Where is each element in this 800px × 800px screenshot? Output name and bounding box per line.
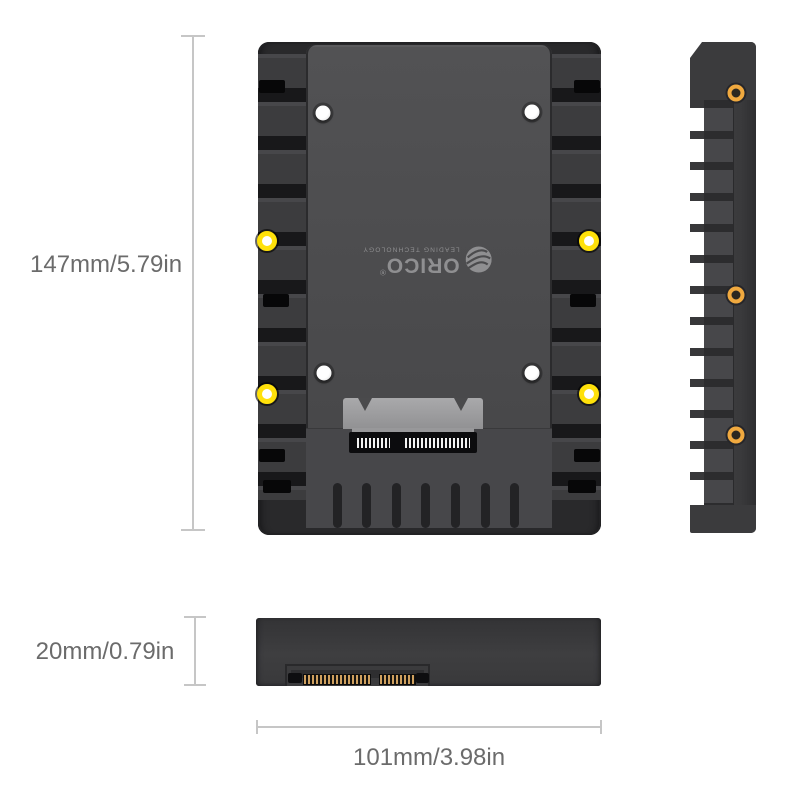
dimension-endcap <box>256 720 258 734</box>
screw-hole-white <box>316 106 331 121</box>
sata-data-pins <box>356 437 391 449</box>
width-dimension-label: 101mm/3.98in <box>353 745 503 771</box>
globe-icon <box>466 247 492 273</box>
hdd-adapter-dimension-diagram: 147mm/5.79in <box>0 0 800 800</box>
vent-slot <box>392 483 401 528</box>
side-bottom-block <box>690 505 756 533</box>
sata-power-pins <box>404 437 471 449</box>
dimension-endcap <box>184 684 206 686</box>
vent-slot <box>481 483 490 528</box>
side-view <box>690 42 756 533</box>
screw-hole-gold <box>728 287 745 304</box>
dimension-endcap <box>181 529 205 531</box>
screw-hole-yellow <box>579 384 599 404</box>
dimension-endcap <box>181 35 205 37</box>
orico-logo: ORICO ® LEADING TECHNOLOGY <box>362 246 491 275</box>
side-rib-teeth <box>690 100 704 480</box>
brand-name: ORICO <box>386 255 460 275</box>
screw-hole-yellow <box>579 231 599 251</box>
brand-tagline: LEADING TECHNOLOGY <box>362 246 459 253</box>
height-dimension-label: 147mm/5.79in <box>30 252 180 278</box>
registered-mark: ® <box>380 268 386 276</box>
screw-hole-white <box>525 366 540 381</box>
left-mounting-rail <box>258 54 312 500</box>
front-view: ORICO ® LEADING TECHNOLOGY <box>258 42 601 535</box>
dimension-endcap <box>184 616 206 618</box>
rail-slot <box>259 449 285 462</box>
thickness-dimension-line <box>194 617 196 685</box>
screw-hole-gold <box>728 427 745 444</box>
side-rib-web <box>704 100 733 505</box>
screw-hole-gold <box>728 85 745 102</box>
connector-tab <box>288 673 302 683</box>
vent-slot <box>362 483 371 528</box>
width-dimension-line <box>257 726 601 728</box>
dimension-endcap <box>600 720 602 734</box>
height-dimension-line <box>192 36 194 530</box>
rail-slot <box>568 480 596 493</box>
rail-slot <box>263 480 291 493</box>
connector-tab <box>416 673 429 683</box>
screw-hole-yellow <box>257 231 277 251</box>
vent-slot <box>451 483 460 528</box>
sata-power-pins-bottom <box>303 674 371 685</box>
rail-slot <box>263 294 289 307</box>
side-top-block <box>690 42 756 100</box>
vent-slot <box>333 483 342 528</box>
screw-hole-white <box>317 366 332 381</box>
right-mounting-rail <box>547 54 601 500</box>
drive-tray-panel <box>306 45 552 428</box>
rail-slot <box>574 449 600 462</box>
vent-slot <box>421 483 430 528</box>
bottom-view <box>256 618 601 686</box>
sata-data-pins-bottom <box>379 674 416 685</box>
screw-hole-white <box>525 105 540 120</box>
thickness-dimension-label: 20mm/0.79in <box>30 639 180 665</box>
vent-slot <box>510 483 519 528</box>
screw-hole-yellow <box>257 384 277 404</box>
rail-slot <box>570 294 596 307</box>
rail-slot <box>574 80 600 93</box>
rail-slot <box>259 80 285 93</box>
